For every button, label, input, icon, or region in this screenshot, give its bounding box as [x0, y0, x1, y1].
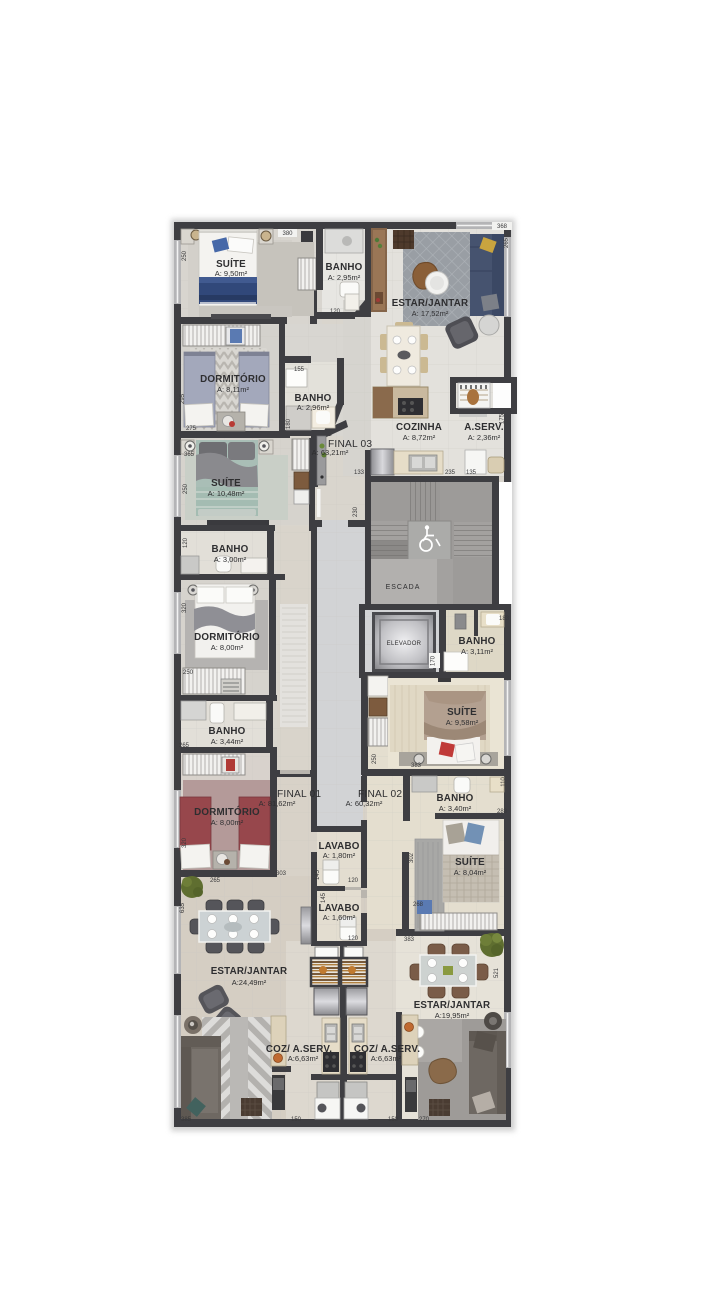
- svg-text:A: 2,96m²: A: 2,96m²: [297, 403, 330, 412]
- svg-text:DORMITÓRIO: DORMITÓRIO: [194, 631, 260, 643]
- svg-text:A.SERV.: A.SERV.: [464, 422, 504, 433]
- svg-text:383: 383: [404, 937, 415, 943]
- svg-text:A: 63,21m²: A: 63,21m²: [312, 448, 349, 457]
- svg-text:BANHO: BANHO: [326, 262, 363, 273]
- svg-text:A:19,95m²: A:19,95m²: [435, 1011, 470, 1020]
- svg-text:SUÍTE: SUÍTE: [447, 706, 477, 718]
- svg-text:235: 235: [445, 470, 456, 476]
- svg-text:120: 120: [330, 309, 341, 315]
- svg-text:SUÍTE: SUÍTE: [211, 477, 241, 489]
- svg-text:A: 60,32m²: A: 60,32m²: [346, 799, 383, 808]
- svg-text:385: 385: [181, 1117, 192, 1123]
- svg-text:A: 8,04m²: A: 8,04m²: [454, 868, 487, 877]
- svg-text:120: 120: [348, 878, 359, 884]
- svg-text:BANHO: BANHO: [212, 544, 249, 555]
- svg-text:A: 10,48m²: A: 10,48m²: [208, 489, 245, 498]
- svg-text:A: 8,00m²: A: 8,00m²: [211, 818, 244, 827]
- svg-text:521: 521: [494, 967, 500, 978]
- svg-text:110: 110: [501, 777, 507, 787]
- svg-text:250: 250: [183, 670, 194, 676]
- svg-text:A: 3,11m²: A: 3,11m²: [461, 647, 493, 656]
- svg-text:ELEVADOR: ELEVADOR: [387, 641, 422, 647]
- svg-text:250: 250: [182, 250, 188, 261]
- svg-text:155: 155: [294, 367, 305, 373]
- svg-text:150: 150: [388, 1117, 399, 1123]
- svg-text:183: 183: [499, 616, 510, 622]
- svg-text:A: 3,40m²: A: 3,40m²: [439, 804, 472, 813]
- svg-text:135: 135: [466, 470, 477, 476]
- svg-text:180: 180: [286, 418, 292, 429]
- svg-text:A:6,63m²: A:6,63m²: [371, 1054, 402, 1063]
- svg-text:250: 250: [183, 483, 189, 494]
- svg-text:A: 1,60m²: A: 1,60m²: [323, 913, 356, 922]
- svg-text:150: 150: [291, 1117, 302, 1123]
- svg-text:A: 3,00m²: A: 3,00m²: [214, 555, 247, 564]
- svg-text:320: 320: [182, 837, 188, 848]
- svg-text:COZINHA: COZINHA: [396, 422, 442, 433]
- svg-text:250: 250: [372, 753, 378, 764]
- svg-text:A: 17,52m²: A: 17,52m²: [412, 309, 449, 318]
- svg-text:383: 383: [411, 763, 422, 769]
- svg-text:175: 175: [500, 413, 506, 424]
- svg-text:BANHO: BANHO: [209, 726, 246, 737]
- svg-text:ESTAR/JANTAR: ESTAR/JANTAR: [392, 298, 469, 309]
- svg-text:A: 1,80m²: A: 1,80m²: [323, 851, 356, 860]
- svg-text:133: 133: [354, 470, 365, 476]
- svg-text:120: 120: [348, 936, 359, 942]
- svg-text:230: 230: [353, 506, 359, 517]
- svg-text:365: 365: [184, 452, 195, 458]
- svg-text:A: 9,50m²: A: 9,50m²: [215, 269, 248, 278]
- svg-text:DORMITÓRIO: DORMITÓRIO: [194, 806, 260, 818]
- svg-text:120: 120: [183, 537, 189, 548]
- svg-text:A: 8,72m²: A: 8,72m²: [403, 433, 436, 442]
- svg-text:145: 145: [321, 892, 327, 903]
- svg-text:380: 380: [282, 231, 293, 237]
- svg-text:320: 320: [182, 602, 188, 613]
- svg-text:SUÍTE: SUÍTE: [455, 856, 485, 868]
- svg-text:283: 283: [497, 809, 508, 815]
- svg-text:A: 3,44m²: A: 3,44m²: [211, 737, 244, 746]
- svg-text:DORMITÓRIO: DORMITÓRIO: [200, 373, 266, 385]
- svg-text:265: 265: [179, 743, 190, 749]
- svg-text:265: 265: [210, 878, 221, 884]
- svg-text:A: 2,36m²: A: 2,36m²: [468, 433, 501, 442]
- svg-text:368: 368: [497, 224, 508, 230]
- svg-text:A:24,49m²: A:24,49m²: [232, 978, 267, 987]
- svg-text:302: 302: [409, 852, 415, 863]
- svg-text:170: 170: [431, 655, 437, 666]
- svg-text:270: 270: [419, 1117, 430, 1123]
- svg-text:BANHO: BANHO: [459, 636, 496, 647]
- svg-text:275: 275: [186, 426, 197, 432]
- svg-text:A: 8,11m²: A: 8,11m²: [217, 385, 249, 394]
- svg-text:A:6,63m²: A:6,63m²: [288, 1054, 319, 1063]
- svg-text:268: 268: [413, 902, 424, 908]
- svg-text:A: 9,58m²: A: 9,58m²: [446, 718, 479, 727]
- svg-text:303: 303: [276, 871, 287, 877]
- svg-text:ESTAR/JANTAR: ESTAR/JANTAR: [414, 1000, 491, 1011]
- svg-text:635: 635: [180, 902, 186, 913]
- svg-text:ESTAR/JANTAR: ESTAR/JANTAR: [211, 966, 288, 977]
- svg-text:ESCADA: ESCADA: [386, 584, 421, 591]
- svg-text:BANHO: BANHO: [437, 793, 474, 804]
- svg-text:A: 2,95m²: A: 2,95m²: [328, 273, 361, 282]
- svg-text:145: 145: [315, 869, 321, 880]
- svg-text:A: 81,62m²: A: 81,62m²: [259, 799, 296, 808]
- svg-text:A: 8,00m²: A: 8,00m²: [211, 643, 244, 652]
- svg-text:265: 265: [504, 237, 510, 248]
- svg-text:295: 295: [180, 393, 186, 404]
